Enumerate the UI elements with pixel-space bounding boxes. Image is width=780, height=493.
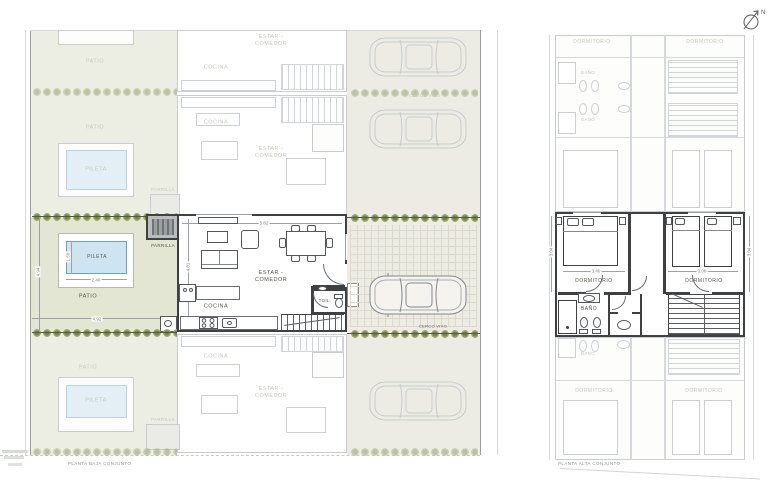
ghost-wall — [556, 380, 744, 381]
property-line — [347, 333, 480, 334]
kitchen-label-ghost: COCINA — [204, 354, 228, 361]
plan-title-alta: PLANTA ALTA CONJUNTO — [558, 461, 620, 466]
bed-ghost — [672, 400, 700, 455]
dining-table — [286, 231, 326, 256]
grill-label: PARRILLA — [151, 243, 175, 249]
ghost-wall — [630, 35, 632, 212]
stairs-ghost — [281, 97, 344, 123]
bed-ghost — [704, 150, 732, 208]
property-line — [347, 217, 480, 218]
bedroom-label-ghost: DORMITORIO — [573, 39, 610, 45]
grill-label-ghost: PARRILLA — [151, 187, 175, 193]
pool-label: PILETA — [87, 254, 107, 260]
bedroom-label-ghost: DORMITORIO — [575, 388, 612, 394]
pool-depth-dim: 1.50 — [66, 252, 71, 263]
toilet-bowl — [580, 317, 588, 328]
toilet-room-ghost — [312, 352, 344, 378]
stairs-ghost — [668, 103, 738, 137]
living-label-ghost: ESTAR - COMEDOR — [255, 34, 287, 48]
coffee-table — [207, 231, 228, 243]
dining-chair — [291, 255, 300, 262]
refrigerator — [179, 284, 196, 302]
toilet-bowl — [335, 298, 343, 308]
car-top-view-ghost — [368, 106, 468, 152]
interior-wall — [640, 294, 642, 335]
ghost-wall — [664, 337, 666, 460]
hedge-row — [350, 329, 478, 339]
bedroom2-width-dim: 3.08 — [697, 269, 708, 274]
north-arrow-icon: N — [740, 4, 770, 34]
living-label-ghost: ESTAR - COMEDOR — [255, 146, 287, 160]
wc-sink — [617, 320, 631, 330]
living-width-dim: 5.82 — [259, 221, 270, 226]
leader-line — [560, 468, 760, 479]
shower-drain — [566, 326, 569, 329]
tv-console — [198, 217, 238, 224]
pillow — [675, 218, 685, 225]
living-depth-dim: 4.81 — [186, 262, 191, 273]
margin-note-marks — [4, 456, 24, 459]
sofa-ghost — [201, 395, 238, 414]
pool-width-dim: 2.40 — [91, 278, 102, 283]
floorplan-sheet: PATIO COCINA ESTAR - COMEDOR CERCO VIVO … — [0, 0, 780, 493]
dining-chair — [291, 225, 300, 232]
pool-surround-ghost-partial — [58, 30, 134, 45]
grill-label-ghost: PARRILLA — [151, 417, 175, 423]
shower-ghost — [558, 338, 576, 358]
armchair — [241, 230, 259, 249]
nightstand — [556, 217, 562, 225]
blanket-line — [672, 230, 700, 231]
sofa-back-line — [202, 264, 237, 265]
patio-width-dim: 4.92 — [92, 317, 103, 322]
toilet-ghost — [579, 80, 587, 92]
hedge-label: CERCO VIVO — [419, 324, 447, 329]
nightstand — [733, 217, 741, 225]
pillow — [707, 218, 717, 225]
patio-label-ghost: PATIO — [79, 365, 97, 372]
patio-dim-line — [32, 318, 177, 319]
living-label-ghost: ESTAR - COMEDOR — [255, 386, 287, 400]
lot-boundary-left — [30, 30, 31, 455]
north-label: N — [761, 10, 765, 16]
planta-baja-plan: PATIO COCINA ESTAR - COMEDOR CERCO VIVO … — [0, 0, 520, 493]
stairs-ghost — [668, 339, 740, 375]
interior-wall — [610, 312, 618, 314]
kitchen-counter-ghost — [181, 97, 276, 108]
kitchen-label-ghost: COCINA — [204, 120, 228, 127]
bath-sink — [583, 295, 595, 302]
kitchen-counter-ghost — [181, 336, 276, 347]
interior-wall — [628, 214, 631, 294]
burner — [189, 288, 193, 292]
hedge-row — [32, 447, 177, 457]
ghost-wall — [630, 337, 632, 460]
bath-label-ghost: BAÑO — [581, 117, 595, 123]
dining-chair — [326, 238, 333, 248]
hedge-row — [32, 87, 177, 97]
shower-ghost — [558, 112, 576, 134]
bedroom-depth-dim: 3.04 — [549, 247, 554, 258]
kitchen-label: COCINA — [204, 304, 228, 311]
kitchen-island-ghost — [196, 364, 240, 377]
ghost-wall — [556, 57, 744, 58]
lot-boundary-right — [480, 30, 481, 455]
bidet-ghost — [591, 103, 599, 115]
stairs-ghost — [281, 64, 344, 90]
living-dim-line — [188, 219, 189, 327]
sink-ghost — [618, 105, 630, 113]
stairs-ghost — [281, 336, 344, 352]
hedge-row — [350, 213, 478, 223]
pillow — [582, 218, 594, 226]
bidet-bowl — [593, 317, 601, 328]
ghost-wall — [556, 137, 744, 138]
pool-dim-line — [71, 241, 72, 274]
car-top-view — [368, 272, 468, 318]
nightstand — [666, 217, 672, 225]
pool-label-ghost: PILETA — [85, 167, 107, 174]
sink-drain — [227, 321, 232, 325]
bedroom-label-ghost: DORMITORIO — [686, 39, 723, 45]
dining-chair — [279, 238, 286, 248]
nightstand — [619, 217, 626, 225]
sofa-ghost — [201, 141, 238, 160]
window — [688, 212, 716, 215]
bed-ghost — [563, 150, 618, 208]
toilet-ghost — [579, 340, 587, 352]
sink-ghost — [618, 82, 630, 90]
ghost-wall — [664, 35, 666, 212]
margin-note-marks — [8, 463, 22, 466]
blanket-line — [563, 231, 618, 232]
dimension-line-right — [753, 35, 754, 460]
sink-ghost — [617, 340, 630, 349]
lot-boundary-far — [497, 30, 498, 455]
bath-label: BAÑO — [581, 306, 597, 312]
bath-label-ghost: BAÑO — [581, 70, 595, 76]
bath-label-ghost: BAÑO — [581, 351, 595, 357]
car-top-view-ghost — [368, 378, 468, 424]
hedge-label-ghost: CERCO VIVO — [409, 93, 440, 99]
window — [573, 212, 601, 215]
dimension-line-left — [25, 30, 26, 455]
window — [345, 234, 348, 260]
interior-wall — [632, 312, 640, 314]
dining-chair — [307, 225, 316, 232]
stairs-divider — [704, 294, 705, 335]
bedroom-depth-dim: 3.04 — [747, 247, 752, 258]
dining-table-ghost — [286, 407, 326, 433]
bedroom1-width-dim: 3.40 — [591, 269, 602, 274]
burner — [183, 288, 187, 292]
interior-wall — [663, 214, 666, 294]
stairs — [281, 314, 344, 330]
toilet-room-ghost — [312, 124, 344, 152]
toilet-ghost — [579, 103, 587, 115]
sofa-seat-divider — [219, 251, 220, 264]
planta-alta-plan: DORMITORIO DORMITORIO BAÑO BAÑO — [520, 0, 780, 493]
patio-label: PATIO — [86, 59, 104, 66]
blanket-line — [704, 230, 732, 231]
patio-label-ghost: PATIO — [86, 125, 104, 132]
living-label: ESTAR - COMEDOR — [255, 270, 287, 284]
interior-wall — [608, 294, 610, 335]
dining-table-ghost — [286, 158, 326, 185]
bed-ghost — [672, 150, 700, 208]
patio-label: PATIO — [79, 294, 97, 301]
patio-depth-dim: 4.94 — [36, 267, 41, 278]
grill-grate — [152, 219, 174, 235]
stairs-ghost — [668, 60, 738, 94]
kitchen-label-ghost: COCINA — [204, 65, 228, 72]
bidet-ghost — [591, 80, 599, 92]
kitchen-counter-ghost — [181, 80, 276, 91]
pillow — [567, 218, 579, 226]
property-line — [32, 332, 177, 333]
dining-chair — [307, 255, 316, 262]
bidet-tank — [592, 329, 601, 334]
hedge-row — [350, 447, 478, 457]
toilet-sink — [318, 286, 327, 291]
outdoor-sink — [164, 320, 172, 327]
toilet-tank — [579, 329, 588, 334]
bedroom-label-ghost: DORMITORIO — [685, 388, 722, 394]
stove-icon — [199, 317, 218, 329]
bed-ghost — [563, 400, 618, 455]
pool-label-ghost: PILETA — [85, 398, 107, 405]
bed-ghost — [704, 400, 732, 455]
bidet-ghost — [591, 340, 599, 352]
kitchen-island — [196, 286, 240, 300]
margin-note-marks — [2, 450, 28, 453]
car-top-view-ghost — [368, 34, 468, 80]
hedge-row — [32, 328, 177, 338]
shower-ghost — [558, 62, 576, 84]
plan-title-baja: PLANTA BAJA CONJUNTO — [68, 461, 131, 466]
